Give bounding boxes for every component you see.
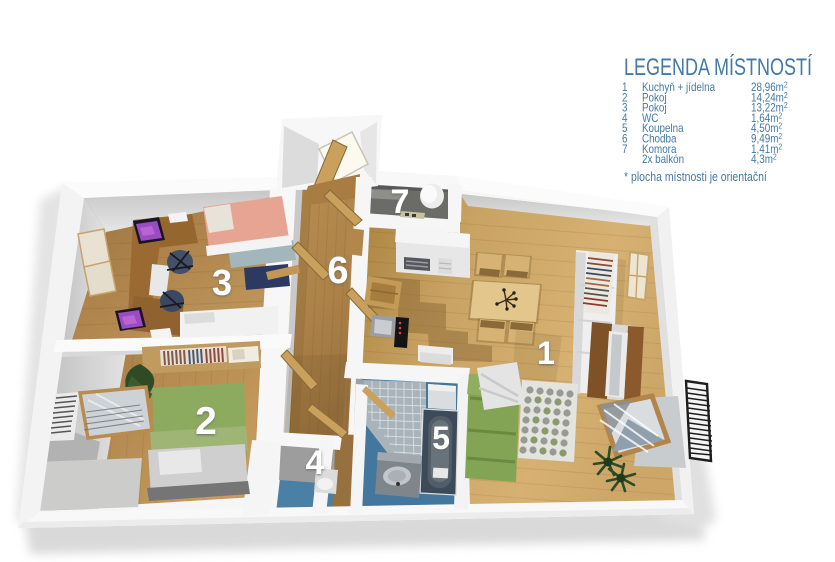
svg-text:5: 5	[432, 420, 450, 456]
svg-text:* plocha místnosti je orientač: * plocha místnosti je orientační	[624, 171, 768, 184]
svg-text:7: 7	[391, 183, 410, 221]
svg-text:4,3m2: 4,3m2	[751, 152, 777, 166]
svg-text:LEGENDA MÍSTNOSTÍ: LEGENDA MÍSTNOSTÍ	[624, 54, 812, 81]
svg-text:6: 6	[327, 250, 348, 292]
svg-text:3: 3	[212, 262, 232, 303]
svg-text:4: 4	[306, 444, 325, 482]
svg-text:1: 1	[537, 335, 555, 371]
svg-text:2x balkón: 2x balkón	[642, 153, 684, 166]
svg-text:7: 7	[622, 143, 627, 156]
svg-text:2: 2	[195, 400, 217, 443]
